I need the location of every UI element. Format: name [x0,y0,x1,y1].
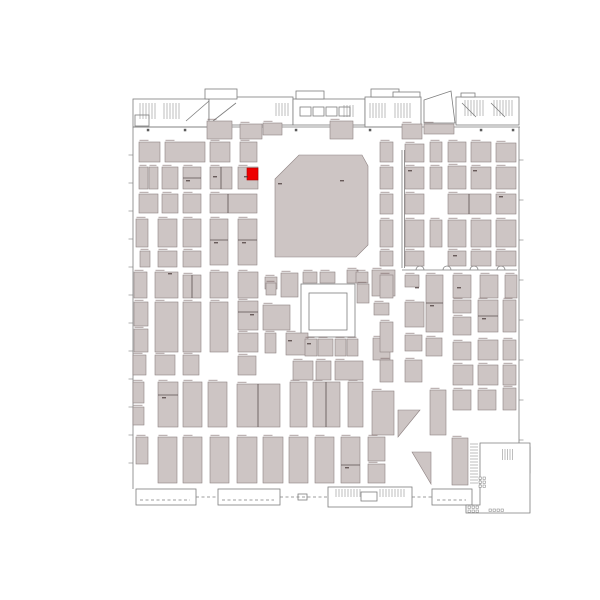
booth-label-speck [211,270,220,271]
structure-outline [218,489,280,505]
booth-label-speck [431,388,440,389]
booth[interactable] [158,251,177,267]
booth[interactable] [158,219,177,247]
booth-label-speck [449,164,458,165]
booth[interactable] [238,301,258,330]
booth[interactable] [313,382,340,427]
booth[interactable] [368,437,385,461]
booth[interactable] [263,123,282,135]
booth-label-speck [348,337,357,338]
booth[interactable] [448,251,466,266]
booth[interactable] [380,167,393,189]
booth[interactable] [281,273,298,297]
booth-label-speck [135,327,144,328]
structure-outline [300,107,311,116]
booth-label-speck [184,217,193,218]
booth[interactable] [155,355,175,375]
booth[interactable] [134,329,148,352]
booth-label-speck [479,363,488,364]
booth[interactable] [430,390,446,435]
booth-label-speck [427,273,436,274]
booth-label-speck [369,462,378,463]
fixture-square [476,506,478,508]
booth-label-speck [135,300,144,301]
booth-label-speck [304,270,313,271]
booth[interactable] [368,464,385,483]
booth-label-speck [319,337,328,338]
booth[interactable] [238,333,258,352]
fixture-square [483,485,485,487]
booth[interactable] [478,365,498,385]
booth-label-speck [381,358,390,359]
booth-label-speck [472,165,481,166]
booth[interactable] [265,333,276,353]
booth[interactable] [183,251,201,267]
booth-label-speck [342,435,351,436]
booth[interactable] [136,219,148,247]
booth[interactable] [240,142,257,162]
booth-label-speck [427,336,436,337]
booth-label-speck [431,140,440,141]
booth-label-speck [504,338,513,339]
booth-label-speck [266,331,275,332]
booth-poly[interactable] [398,410,420,437]
booth-label-speck [454,298,463,299]
booth[interactable] [183,302,201,352]
booth-label-speck [156,270,165,271]
booth-label-speck [431,165,440,166]
column-dot [147,129,150,132]
booth-label-speck [159,249,168,250]
booth[interactable] [402,124,422,139]
booth[interactable] [380,275,393,298]
booth-label-speck [381,320,390,321]
booth-label-speck [406,249,415,250]
booth[interactable] [210,272,228,298]
booth-inner-speck [288,340,292,341]
fixture-square [468,506,470,508]
booth[interactable] [380,251,393,266]
booth[interactable] [149,167,158,189]
booth[interactable] [471,142,491,162]
booth[interactable] [162,194,178,213]
booth-label-speck [156,353,165,354]
booth[interactable] [503,365,516,385]
booth-inner-speck [408,170,412,171]
booth[interactable] [424,124,454,134]
booth-label-speck [282,271,291,272]
booth-label-speck [358,282,367,283]
booth-label-speck [381,140,390,141]
booth-inner-speck [214,242,218,243]
booth[interactable] [134,272,147,298]
booth-inner-speck [345,467,349,468]
booth[interactable] [139,142,160,162]
booth[interactable] [134,302,148,326]
booth-inner-speck [278,183,282,184]
booth[interactable] [505,275,517,298]
booth[interactable] [210,194,257,213]
booth-label-speck [497,249,506,250]
fixture-square [479,481,481,483]
booth[interactable] [453,390,471,410]
booth[interactable] [335,339,346,356]
booth-inner-speck [162,397,166,398]
booth-label-speck [208,119,217,120]
booth-label-speck [369,435,378,436]
booth[interactable] [453,317,471,335]
booth[interactable] [183,355,199,375]
booth[interactable] [263,305,290,330]
booth[interactable] [208,382,227,427]
booth[interactable] [162,167,178,189]
booth-label-speck [211,192,220,193]
booth-label-speck [287,331,296,332]
booth[interactable] [139,167,148,189]
fixture-square [479,485,481,487]
booth[interactable] [372,391,394,435]
fixture-square [489,509,491,511]
booth[interactable] [183,219,201,247]
booth[interactable] [405,251,424,266]
booth[interactable] [305,339,317,356]
structure-outline [309,293,347,330]
booth[interactable] [183,437,202,483]
booth[interactable] [453,300,471,313]
structure-outline-poly [466,443,530,513]
booth[interactable] [471,220,491,247]
booth-inner-speck [242,242,246,243]
booth-label-speck [454,273,463,274]
booth[interactable] [503,340,516,360]
structure-outline [339,107,350,116]
booth[interactable] [210,302,228,352]
door-arc [443,266,451,270]
booth-label-speck [497,165,506,166]
booth[interactable] [183,382,202,427]
booth[interactable] [448,142,466,162]
booth-inner-speck [168,273,172,274]
floor-plan-page [0,0,600,600]
booth[interactable] [430,220,442,247]
booth[interactable] [478,340,498,360]
booth-label-speck [290,435,299,436]
booth-label-speck [406,273,415,274]
booth-label-speck [479,298,488,299]
booth[interactable] [380,194,393,214]
structure-outline [296,91,324,99]
booth[interactable] [405,275,419,287]
column-dot [369,129,372,132]
booth-label-speck [159,435,168,436]
booth-label-speck [184,273,193,274]
booth-label-speck [264,121,273,122]
booth-label-speck [406,165,415,166]
booth-label-speck [336,337,345,338]
booth-label-speck [403,122,412,123]
booth[interactable] [139,194,158,213]
booth-label-speck [239,331,248,332]
booth-label-speck [150,165,157,166]
booth-label-speck [481,273,490,274]
booth-label-speck [357,270,366,271]
booth[interactable] [471,251,491,266]
booth-label-speck [406,333,415,334]
booth[interactable] [347,339,358,356]
booth[interactable] [405,302,424,327]
booth-label-speck [184,353,193,354]
structure-outline [393,92,420,97]
booth[interactable] [133,355,146,375]
booth[interactable] [380,142,393,162]
booth-inner-speck [499,196,503,197]
booth[interactable] [480,275,498,298]
booth[interactable] [140,251,150,267]
booth-label-speck [163,165,172,166]
booth[interactable] [303,272,317,283]
booth-label-speck [406,358,415,359]
structure-outline [313,107,324,116]
booth-label-speck [317,359,326,360]
structure-outline [456,97,519,125]
booth[interactable] [496,167,516,189]
structure-outline [135,115,149,126]
booth[interactable] [210,142,230,162]
door-arc [416,266,424,270]
booth-label-speck [381,218,390,219]
structure-outline [365,97,421,127]
booth[interactable] [240,124,262,139]
booth-inner-speck [340,180,344,181]
booth-label-speck [373,389,382,390]
booth[interactable] [496,220,516,247]
booth-label-speck [211,140,220,141]
booth[interactable] [155,272,178,298]
booth[interactable] [405,360,422,382]
booth-inner-speck [473,170,477,171]
booth-label-speck [479,338,488,339]
booth-label-speck [267,281,275,282]
booth-label-speck [239,270,248,271]
booth-label-speck [239,165,248,166]
booth-inner-speck [213,176,217,177]
booth[interactable] [133,382,144,403]
booth-inner-speck [430,305,434,306]
booth-label-speck [184,380,193,381]
fixture-square [483,481,485,483]
booth-poly[interactable] [275,155,368,257]
booth-label-speck [316,435,325,436]
structure-outline-poly [424,91,455,123]
structure-outline [432,489,472,505]
booth[interactable] [158,437,177,483]
booth[interactable] [380,322,393,352]
booth[interactable] [430,142,442,162]
booth[interactable] [380,360,393,382]
booth[interactable] [405,167,424,189]
booth-label-speck [184,249,193,250]
booth[interactable] [478,390,496,410]
column-dot [480,129,483,132]
booth-inner-speck [457,287,461,288]
booth-label-speck [294,359,303,360]
booth-label-speck [406,142,415,143]
booth-label-speck [137,435,146,436]
booth[interactable] [330,121,353,139]
booth-label-speck [211,435,220,436]
booth[interactable] [503,388,516,410]
fixture-square [483,477,485,479]
booth[interactable] [453,275,471,298]
structure-outline [361,492,377,501]
column-dot [512,129,515,132]
booth-label-speck [137,217,146,218]
booth[interactable] [448,220,466,247]
booth-label-speck [449,218,458,219]
booth[interactable] [448,194,491,214]
booth[interactable] [374,303,389,315]
fixture-square [501,509,503,511]
booth[interactable] [158,382,178,427]
booth[interactable] [290,382,307,427]
booth[interactable] [341,437,360,483]
booth-label-speck [472,140,481,141]
booth-label-speck [381,165,390,166]
booth-label-speck [336,359,345,360]
booth[interactable] [320,272,335,283]
booth[interactable] [316,361,331,380]
booth[interactable] [237,437,257,483]
booth-label-speck [264,303,273,304]
booth[interactable] [238,272,258,298]
booth-label-speck [348,268,357,269]
booth-label-speck [373,268,382,269]
booth[interactable] [380,220,393,247]
booth-label-speck [266,275,275,276]
booth-label-speck [238,435,247,436]
booth-label-speck [159,217,168,218]
booth-label-speck [241,122,250,123]
booth-label-speck [306,337,315,338]
booth[interactable] [496,251,516,266]
booth[interactable] [136,437,148,464]
structure-outline [136,489,196,505]
booth[interactable] [426,275,443,332]
booth[interactable] [430,167,442,189]
booth[interactable] [496,143,516,162]
booth[interactable] [289,437,308,483]
floor-plan-map[interactable] [0,0,600,600]
booth-label-speck [239,299,248,300]
booth[interactable] [448,166,466,189]
booth-inner-speck [307,343,311,344]
booth[interactable] [405,144,424,162]
booth[interactable] [210,219,228,265]
booth[interactable] [266,283,276,295]
booth-inner-speck [415,287,419,288]
booth-label-speck [239,354,248,355]
booth-label-speck [156,300,165,301]
booth-label-speck [497,141,506,142]
booth-label-speck [425,122,434,123]
booth-label-speck [454,388,463,389]
booth[interactable] [357,284,369,303]
booth-label-speck [140,165,147,166]
booth[interactable] [315,437,334,483]
fixture-square [472,506,474,508]
fixture-square [468,510,470,512]
column-dot [184,129,187,132]
booth[interactable] [348,382,363,427]
highlighted-booth[interactable] [247,168,258,180]
booth[interactable] [238,219,257,265]
booth-poly[interactable] [412,452,431,484]
booth[interactable] [426,338,442,356]
booth[interactable] [293,361,313,380]
booth-label-speck [166,140,175,141]
booth[interactable] [165,142,205,162]
booth-label-speck [449,249,458,250]
booth[interactable] [155,302,178,352]
booth[interactable] [356,272,368,283]
booth[interactable] [210,437,229,483]
booth-inner-speck [244,176,248,177]
booth-label-speck [135,270,144,271]
booth[interactable] [318,339,333,356]
booth-inner-speck [453,255,457,256]
booth[interactable] [405,194,424,214]
booth[interactable] [263,437,283,483]
booth-label-speck [264,435,273,436]
booth[interactable] [238,356,256,375]
booth[interactable] [453,342,471,360]
booth-label-speck [140,140,149,141]
booth-label-speck [140,192,149,193]
booth-label-speck [238,382,247,383]
booth[interactable] [405,335,422,351]
booth-label-speck [454,315,463,316]
booth[interactable] [452,438,468,485]
column-dot [295,129,298,132]
fixture-square [476,510,478,512]
booth-label-speck [454,340,463,341]
booth-label-speck [504,386,513,387]
booth-label-speck [504,363,513,364]
booth-label-speck [375,301,384,302]
booth-inner-speck [250,314,254,315]
booth-label-speck [506,273,515,274]
booth-label-speck [479,388,488,389]
booth-label-speck [472,249,481,250]
booth-label-speck [211,217,220,218]
booth-label-speck [454,363,463,364]
booth[interactable] [335,361,363,380]
booth-label-speck [184,300,193,301]
structure-outline [461,93,475,97]
booth-label-speck [184,435,193,436]
booth[interactable] [207,121,232,139]
booth[interactable] [183,194,201,213]
booth[interactable] [453,365,473,385]
booth[interactable] [503,300,516,332]
booth-inner-speck [482,318,486,319]
booth-label-speck [134,405,143,406]
booth-label-speck [431,218,440,219]
booth[interactable] [133,407,144,425]
booth[interactable] [405,220,424,247]
booth-label-speck [211,165,220,166]
booth[interactable] [237,384,280,427]
